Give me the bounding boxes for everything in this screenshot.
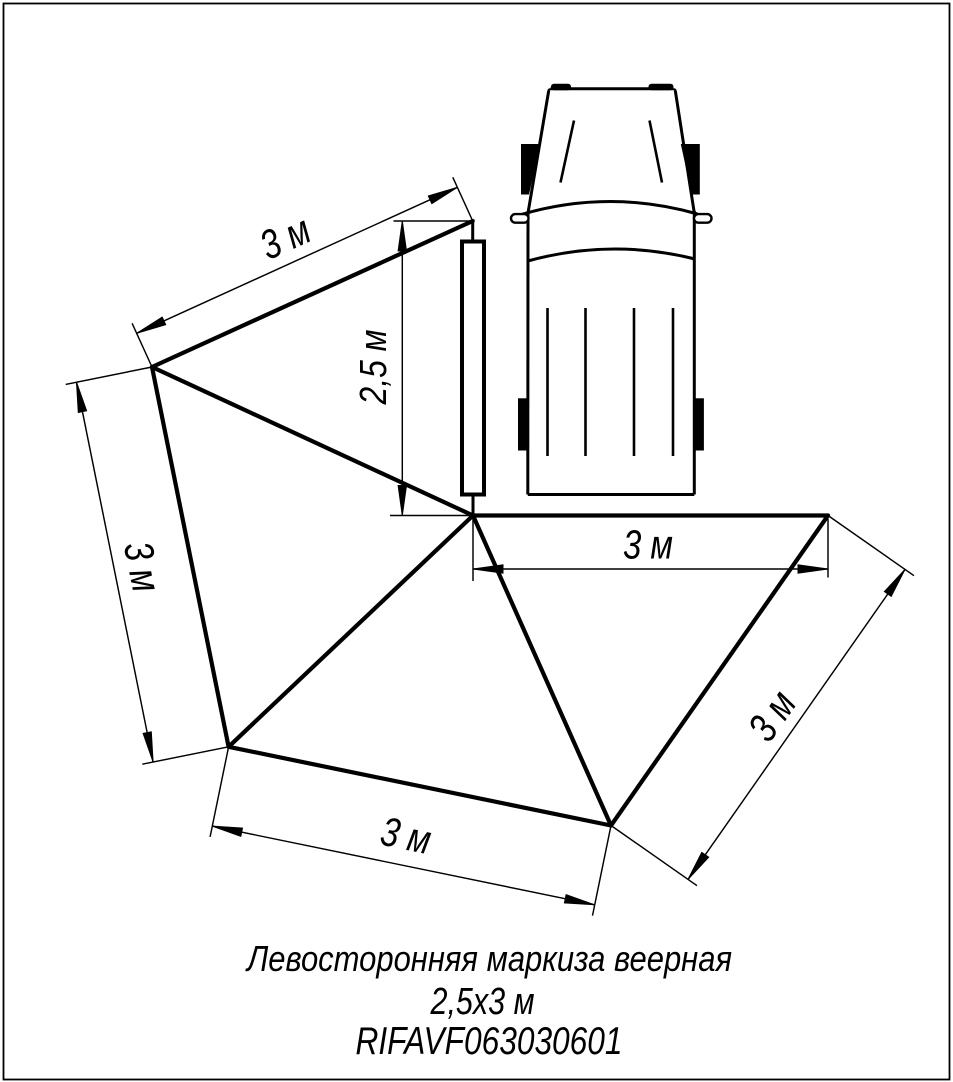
svg-text:2,5х3 м: 2,5х3 м: [430, 981, 535, 1023]
svg-text:3 м: 3 м: [377, 808, 435, 863]
svg-text:RIFAVF063030601: RIFAVF063030601: [356, 1020, 623, 1063]
svg-text:3 м: 3 м: [115, 538, 170, 596]
svg-text:2,5 м: 2,5 м: [353, 330, 395, 406]
svg-text:Левосторонняя маркиза веерная: Левосторонняя маркиза веерная: [245, 938, 732, 979]
svg-text:3 м: 3 м: [623, 522, 673, 568]
